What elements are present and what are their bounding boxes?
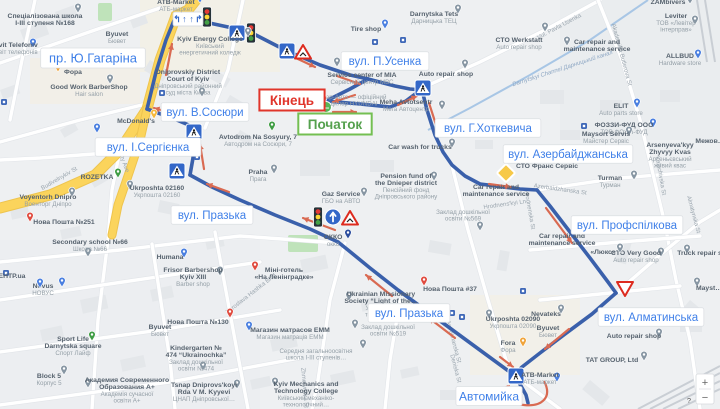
poi-label: TAT GROUP, Ltd [586,357,638,364]
crossing-person-head [236,30,238,32]
zoom-out-button[interactable]: − [702,392,708,404]
building-footprint [475,140,493,149]
poi-label: Secondary school №66 [52,239,128,246]
poi-sublabel: дилер HYUNDAI [330,101,377,108]
poi-pin-dot [560,306,562,308]
poi-pin-dot [488,311,490,313]
poi-label: ATB-Market [521,372,559,379]
street-label: вул. Г.Хоткевича [435,119,541,138]
poi-label: Avtodrom Na Sosyury, 7 [219,134,297,141]
street-label: Автомийка [456,387,522,406]
poi-label: the Dnieper district [375,180,438,187]
poi-sublabel: школа І-ІІІ ступенів… [286,355,347,362]
poi-sublabel: Бювет [539,332,557,339]
poi-sublabel: Майстер Сервіс [583,138,629,145]
building-footprint [560,130,580,140]
poi-pin-dot [247,29,249,31]
traffic-light-red [316,209,321,214]
building-footprint [300,160,330,176]
traffic-light-green [205,20,210,25]
poi-label: Rda V M. Kyyevi [178,389,231,396]
poi-pin-dot [254,263,256,265]
poi-sublabel: освіти №569 [445,216,482,223]
poi-sublabel: Корпус 5 [36,380,62,387]
poi-pin-dot [109,76,111,78]
poi-pin-dot [643,353,645,355]
poi-sublabel: Hardware store [659,60,702,67]
poi-label: Novus [33,283,54,290]
lane-arrow-glyph: ↑ [189,14,194,24]
transit-stop-glyph [374,41,376,43]
poi-label: Technology College [274,388,338,395]
poi-label: Car wash for trucks [388,144,452,151]
poi-label: Mayst… [696,285,720,292]
transit-stop-glyph [583,125,585,127]
start-label: Початок [298,114,371,135]
poi-pin-dot [63,367,65,369]
poi-pin-dot [77,5,79,7]
street-label-text: вул. В.Сосюри [166,107,243,119]
pedestrian-crossing-sign-icon [279,43,295,59]
poi-pin-dot [686,246,688,248]
poi-sublabel: Barber shop [176,281,210,288]
building-footprint [540,90,564,104]
poi-label: Образования А+ [99,383,155,391]
poi-pin-dot [248,323,250,325]
poi-pin-dot [39,280,41,282]
poi-label: maintenance service [564,46,631,53]
poi-label: Zhyvyy Kvas [649,149,691,156]
crossing-person-head [193,129,195,131]
poi-sublabel: освіти №474 [178,366,215,373]
street-label: вул. Профспілкова [571,216,683,235]
park-area [98,3,112,21]
poi-label: Byuvet [537,325,560,332]
poi: Pension fund ofthe Dnieper districtПенсі… [375,171,438,200]
poi-label: Kyiv XIII [180,274,207,281]
poi-sublabel: АТБ-маркет [159,6,193,13]
map-canvas[interactable]: Darnytskyi Channel Дарницький каналVul. … [0,0,720,409]
poi-label: Byuvet [106,31,129,38]
poi-label: Svit Telefoniv [0,42,38,49]
poi-pin-dot [362,341,364,343]
poi-pin-dot [696,279,698,281]
poi-sublabel: Auto repair shop [613,257,659,264]
poi-label: Humana [157,254,184,261]
poi-pin-dot [544,24,546,26]
poi-pin-dot [229,310,231,312]
poi-label: Praha [249,169,268,176]
poi-pin-dot [117,170,119,172]
poi-sublabel: Фора [500,347,516,354]
poi-label: Court of Kyiv [167,76,210,83]
poi-label: Leviter [665,13,688,20]
street-label-text: вул. Празька [375,308,444,320]
poi-sublabel: Hair salon [75,91,103,98]
end-label: Кінець [259,90,324,111]
poi-sublabel: Укрпошта 02160 [134,192,181,199]
poi-label: ALLBUD [666,53,694,60]
poi-label: Нова Пошта №251 [33,219,95,226]
poi-sublabel: технологічний… [283,402,329,409]
poi-label: І-ІІІ ступеня №168 [15,20,75,27]
poi-label: ЕНТР.ua [0,273,26,280]
poi: ByuvetБювет [106,31,129,45]
poi-pin-dot [433,173,435,175]
traffic-light-yellow [316,215,321,220]
poi-pin-dot [91,333,93,335]
poi-sublabel: АТБ-маркет [523,379,557,386]
poi-label: Tsnap Dniprovs'koyi [171,382,237,389]
poi-pin-dot [363,189,365,191]
poi-pin-dot [619,245,621,247]
street-label-text: вул. Профспілкова [577,220,678,232]
poi-label: Магазин матрасов ЕММ [250,327,330,334]
poi-label: Nevateks [531,311,561,318]
poi-pin-dot [29,214,31,216]
poi-sublabel: окко [327,241,340,248]
poi-label: Auto repair shop [419,71,473,78]
crossing-person-head [176,168,178,170]
poi: Межов… [695,138,720,145]
poi-label: maintenance service [529,240,596,247]
poi-label: Car repair and [574,39,620,46]
street-label: вул. Азербайджанська [503,145,633,164]
poi-label: Turman [598,175,622,182]
poi-sublabel: Бювет [151,331,169,338]
poi-label: Auto repair shop [607,333,661,340]
poi-label: Maysort Servis [582,131,631,138]
poi-sublabel: інтерправ» [660,27,692,34]
transit-stop-icon [1,99,7,105]
street-label: вул. П.Усенка [341,52,429,71]
poi-label: Truck repair sh… [677,250,720,257]
go-straight-sign-icon [325,209,341,225]
building-footprint [370,160,394,172]
building-footprint [660,90,680,102]
poi-sublabel: Auto parts store [599,110,643,117]
poi-pin-dot [354,321,356,323]
poi-label: Нова Пошта #37 [423,286,477,293]
transit-stop-icon [159,90,165,96]
poi-pin-dot [636,100,638,102]
poi-pin-dot [479,223,481,225]
street-label-text: Автомийка [459,389,519,403]
poi-sublabel: Auto repair shop [496,44,542,51]
street-label-text: вул. Празька [178,210,247,222]
poi-pin-dot [451,140,453,142]
poi-sublabel: ГБО на АВТО [322,198,361,205]
poi-label: Нова Пошта №130 [167,319,229,326]
traffic-light-icon [203,7,212,27]
poi: ATB-MarketАТБ-маркет [521,372,560,386]
poi-sublabel: Магазин матраців ЕММ [256,334,323,341]
start-marker-dot [327,107,329,109]
transit-stop-glyph [461,316,463,318]
lane-directions-sign-icon: ↰↑↑↱ [173,12,203,26]
poi-sublabel: Світ телефонів [0,49,38,56]
poi-label: Meha Avtotsentr [380,99,433,106]
poi-sublabel: Турман [599,182,620,189]
poi-pin-dot [183,250,185,252]
poi-label: Межов… [695,138,720,145]
street-label: вул. І.Сергієнка [95,138,201,157]
poi-sublabel: Военторг Дніпро [24,201,72,208]
poi-pin-dot [347,231,349,233]
poi-label: Dniprovskiy District [156,69,221,76]
traffic-light-icon [314,207,323,227]
poi-pin-dot [633,172,635,174]
pedestrian-crossing-sign-icon [169,163,185,179]
poi-label: Car repair and [473,184,519,191]
traffic-light-yellow [205,15,210,20]
poi-label: Ukrainian Missionary [347,291,416,298]
traffic-light-green [249,36,254,41]
poi-label: Frisor Barbershop [163,267,222,274]
poi-pin-dot [522,339,524,341]
poi: Tsnap Dniprovs'koyiRda V M. KyyeviЦНАП Д… [171,379,240,403]
street-label: вул. Алматинська [598,308,704,327]
poi-sublabel: ЦНАП Дніпровської… [173,396,235,403]
street-label-text: вул. Г.Хоткевича [444,123,533,135]
street-label: вул. Празька [368,304,450,323]
poi-pin-dot [441,102,443,104]
poi-label: Arsenyeva'kyy [646,142,694,149]
poi-label: Darnytska square [44,343,101,350]
transit-stop-glyph [522,290,524,292]
poi-label: ФОЗЗИ-ФУД ООО [595,122,654,129]
street-label-text: вул. Азербайджанська [508,149,628,161]
poi-pin-dot [697,51,699,53]
poi-sublabel: НОВУС [32,290,54,297]
poi-sublabel: Автодром на Сосюри, 7 [224,141,292,148]
poi-label: Fora [501,340,516,347]
map-svg[interactable]: Darnytskyi Channel Дарницький каналVul. … [0,0,720,409]
poi-label: ELIT [614,103,630,110]
poi: ByuvetБювет [149,324,172,338]
poi-label: Darnytska Tets [410,11,458,18]
poi-sublabel: Укрпошта 02090 [490,323,537,330]
street-label: вул. В.Сосюри [161,103,249,122]
lane-arrow-glyph: ↱ [195,14,203,24]
lane-arrow-glyph: ↑ [182,14,187,24]
poi-label: ОККО [324,234,343,241]
poi-sublabel: енергетичний коледж [179,50,241,57]
street-label-text: вул. Алматинська [604,312,699,324]
poi-sublabel: Школа №66 [73,246,108,253]
help-icon[interactable]: ? [687,396,691,405]
poi: Дар-Авто — офіційнийдилер HYUNDAI [322,94,387,108]
poi-label: Фора [64,69,82,76]
crossing-person-head [515,373,517,375]
poi-label: Good Work BarberShop [50,84,127,91]
transit-stop-glyph [3,101,5,103]
transit-stop-icon [459,314,465,320]
poi-pin-dot [457,6,459,8]
poi-label: McDonald's [117,118,155,125]
poi-sublabel: живий квас [654,163,686,170]
poi-label: Gaz Service [322,191,361,198]
poi-sublabel: Дарницька ТЕЦ [411,18,457,25]
poi-label: Service center of MIA [327,72,396,79]
crossing-person-head [286,48,288,50]
poi-pin-dot [566,38,568,40]
transit-stop-glyph [161,92,163,94]
poi: ByuvetБювет [537,325,560,339]
poi-pin-dot [464,61,466,63]
poi-pin-dot [71,189,73,191]
poi-label: Sport Life [57,336,89,343]
poi-label: ZAMbivers [651,0,686,6]
transit-stop-icon [581,123,587,129]
transit-stop-icon [520,288,526,294]
poi-pin-dot [384,21,386,23]
zoom-in-button[interactable]: + [702,377,708,389]
poi-pin-dot [96,125,98,127]
poi-sublabel: Мега Автоцентр [383,106,430,113]
traffic-light-green [316,220,321,225]
poi-label: Академия Современного [85,377,169,384]
poi-sublabel: суд міста Києва [166,90,211,97]
traffic-light-red [205,9,210,14]
start-label-text: Початок [308,117,363,132]
pedestrian-crossing-sign-icon [415,80,431,96]
poi-label: CTO Werkstatt [496,37,544,44]
street-label-text: пр. Ю.Гагаріна [49,51,138,66]
poi-label: 474 “Ukrainochka” [166,352,227,359]
poi-label: Ukrposhta 02160 [130,185,185,192]
poi-label: «На Ленінградке» [254,273,313,281]
poi-label: Міні-готель [265,266,303,274]
street-label: пр. Ю.Гагаріна [41,48,146,68]
poi-sublabel: Дніпровського району [375,194,438,201]
transit-stop-glyph [402,39,404,41]
transit-stop-icon [400,37,406,43]
poi-sublabel: освіти А+ [114,398,141,405]
poi-label: Tire shop [351,26,381,33]
crossing-person-head [422,85,424,87]
poi-label: Спеціалізована школа [8,12,83,20]
poi-label: ROZETKA [81,174,114,181]
end-label-text: Кінець [270,93,314,108]
poi-label: Voyentorh Dnipro [20,194,77,201]
lane-arrow-glyph: ↰ [173,14,181,24]
transit-stop-glyph [451,312,453,314]
poi-pin-dot [271,123,273,125]
transit-stop-icon [372,39,378,45]
poi-pin-dot [273,166,275,168]
poi-sublabel: Прага [250,176,267,183]
poi-pin-dot [61,279,63,281]
poi-label: Pension fund of [380,173,432,180]
poi-label: Kyiv Mechanics and [274,381,339,388]
poi-sublabel: освіти №519 [370,331,407,338]
poi-label: «Люкс» [590,249,615,256]
poi-label: Kyiv Energy College [177,36,243,43]
poi-label: Kindergarten № [170,345,222,352]
poi-sublabel: Бювет [108,38,126,45]
street-label: вул. Празька [171,206,253,225]
poi-pin-dot [423,278,425,280]
poi-label: Block 5 [37,373,61,380]
street-label-text: вул. П.Усенка [349,56,422,68]
poi-sublabel: Спорт Лайф [55,350,90,357]
poi-pin-dot [336,59,338,61]
poi-label: maintenance service [463,191,530,198]
poi-pin-dot [153,111,155,113]
poi-sublabel: Сервісний центр МВС [330,79,394,86]
street-label-text: вул. І.Сергієнка [107,142,190,154]
